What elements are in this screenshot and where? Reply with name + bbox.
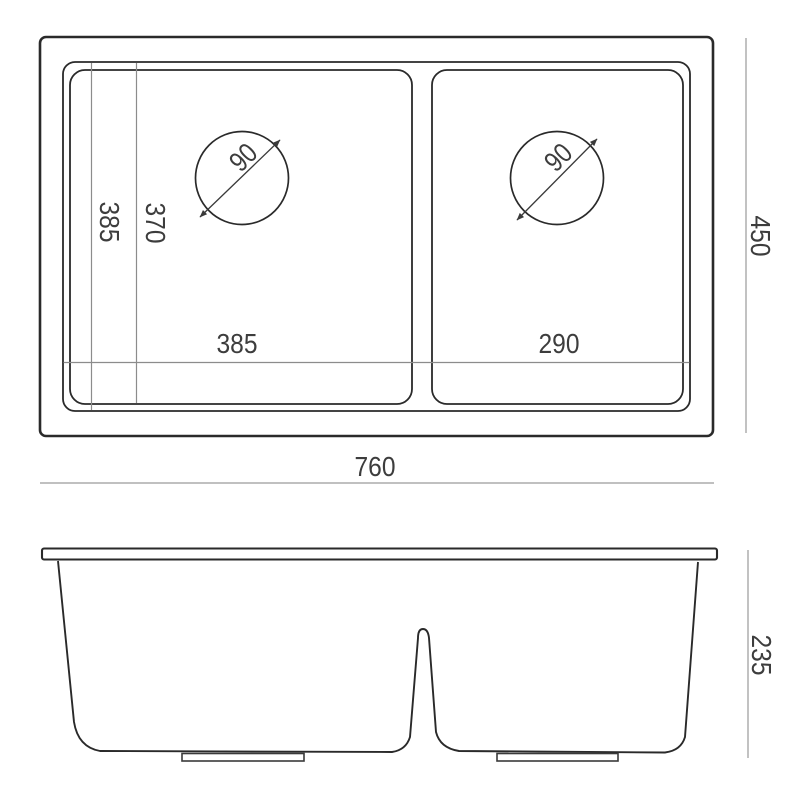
left-foot-pad xyxy=(182,754,304,762)
front-body-outline xyxy=(58,561,698,753)
right-drain-diameter-label: 90 xyxy=(538,137,578,177)
depth-inner-label: 370 xyxy=(140,203,171,244)
sink-technical-drawing: 90 90 385 370 385 290 760 450 xyxy=(0,0,800,794)
right-drain: 90 xyxy=(511,132,604,225)
right-foot-pad xyxy=(497,754,618,762)
front-view xyxy=(42,549,717,762)
left-bowl-width-label: 385 xyxy=(217,328,258,359)
front-rim xyxy=(42,549,717,560)
left-drain-diameter-label: 90 xyxy=(223,137,263,177)
left-drain: 90 xyxy=(196,132,289,225)
right-bowl-width-label: 290 xyxy=(539,328,580,359)
depth-outer-label: 385 xyxy=(94,202,125,243)
overall-width-dimension: 760 xyxy=(40,451,714,483)
top-view: 90 90 385 370 385 290 xyxy=(40,37,713,436)
overall-height-label: 235 xyxy=(746,635,777,676)
overall-height-dimension: 235 xyxy=(746,550,777,758)
overall-width-label: 760 xyxy=(355,451,396,482)
overall-depth-label: 450 xyxy=(745,216,776,257)
overall-depth-dimension: 450 xyxy=(745,38,776,433)
